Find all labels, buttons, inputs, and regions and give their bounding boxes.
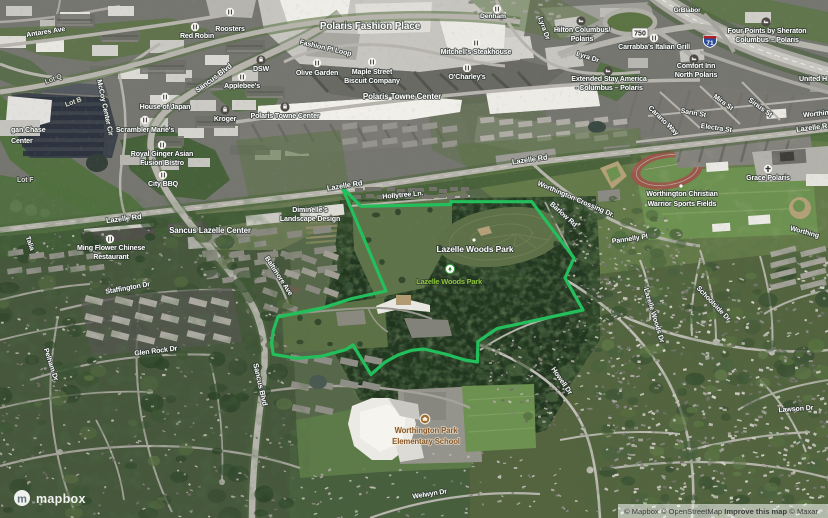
- svg-text:Extended Stay America: Extended Stay America: [571, 75, 647, 83]
- svg-text:Biscuit Company: Biscuit Company: [344, 77, 400, 85]
- svg-text:Elementary School: Elementary School: [392, 437, 460, 446]
- svg-text:Diminelle's: Diminelle's: [292, 206, 328, 214]
- svg-text:Worthington Christian: Worthington Christian: [646, 190, 718, 198]
- svg-text:Warrior Sports Fields: Warrior Sports Fields: [648, 200, 717, 208]
- svg-text:© Mapbox © OpenStreetMap Impro: © Mapbox © OpenStreetMap Improve this ma…: [624, 507, 819, 516]
- svg-text:Red Robin: Red Robin: [180, 32, 214, 40]
- svg-text:North Polaris: North Polaris: [675, 71, 718, 79]
- svg-text:Sancus Lazelle Center: Sancus Lazelle Center: [169, 226, 251, 235]
- svg-text:City BBQ: City BBQ: [148, 180, 179, 188]
- svg-text:Worthington Park: Worthington Park: [395, 426, 459, 435]
- svg-text:Kroger: Kroger: [214, 115, 237, 123]
- svg-text:m: m: [17, 494, 27, 506]
- svg-text:Four Points by Sheraton: Four Points by Sheraton: [728, 27, 807, 35]
- svg-text:Maple Street: Maple Street: [352, 68, 393, 76]
- svg-text:Grace Polaris: Grace Polaris: [746, 174, 790, 182]
- svg-text:- Columbus – Polaris: - Columbus – Polaris: [575, 84, 643, 92]
- svg-text:DSW: DSW: [253, 65, 270, 73]
- svg-text:Restaurant: Restaurant: [93, 253, 129, 261]
- svg-text:Royal Ginger Asian: Royal Ginger Asian: [131, 150, 193, 158]
- svg-text:Lot F: Lot F: [17, 177, 34, 184]
- svg-text:O'Charley's: O'Charley's: [448, 73, 485, 81]
- svg-text:Roosters: Roosters: [215, 25, 245, 33]
- svg-text:Ming Flower Chinese: Ming Flower Chinese: [77, 244, 145, 252]
- svg-text:Lazelle Woods Park: Lazelle Woods Park: [437, 244, 514, 254]
- svg-text:United H: United H: [799, 75, 827, 83]
- svg-text:Polaris Fashion Place: Polaris Fashion Place: [320, 21, 421, 32]
- svg-text:Polaris: Polaris: [571, 35, 594, 43]
- svg-text:Olive Garden: Olive Garden: [296, 69, 338, 77]
- svg-text:House of Japan: House of Japan: [140, 103, 191, 111]
- svg-text:mapbox: mapbox: [36, 492, 86, 506]
- svg-text:Polaris Towne Center: Polaris Towne Center: [250, 112, 319, 120]
- svg-text:750: 750: [634, 31, 646, 38]
- svg-text:Hilton Columbus/: Hilton Columbus/: [554, 26, 610, 34]
- svg-text:Polaris Towne Center: Polaris Towne Center: [363, 92, 441, 101]
- svg-text:GrBlabor: GrBlabor: [674, 7, 702, 14]
- svg-text:Comfort Inn: Comfort Inn: [677, 62, 716, 70]
- svg-text:Center: Center: [11, 137, 33, 145]
- svg-text:Fusion Bistro: Fusion Bistro: [140, 159, 185, 167]
- svg-text:Columbus – Polaris: Columbus – Polaris: [735, 36, 799, 44]
- svg-text:gan Chase: gan Chase: [11, 126, 46, 134]
- svg-text:Carrabba's Italian Grill: Carrabba's Italian Grill: [618, 43, 690, 51]
- svg-text:Applebee's: Applebee's: [224, 82, 260, 90]
- svg-text:Scrambler Marie's: Scrambler Marie's: [116, 126, 174, 134]
- svg-text:71: 71: [706, 40, 714, 47]
- svg-text:Denham: Denham: [480, 13, 506, 20]
- svg-text:Landscape Design: Landscape Design: [280, 215, 340, 223]
- svg-text:Lazelle Woods Park: Lazelle Woods Park: [416, 277, 483, 286]
- svg-text:Mitchell's Steakhouse: Mitchell's Steakhouse: [441, 48, 512, 56]
